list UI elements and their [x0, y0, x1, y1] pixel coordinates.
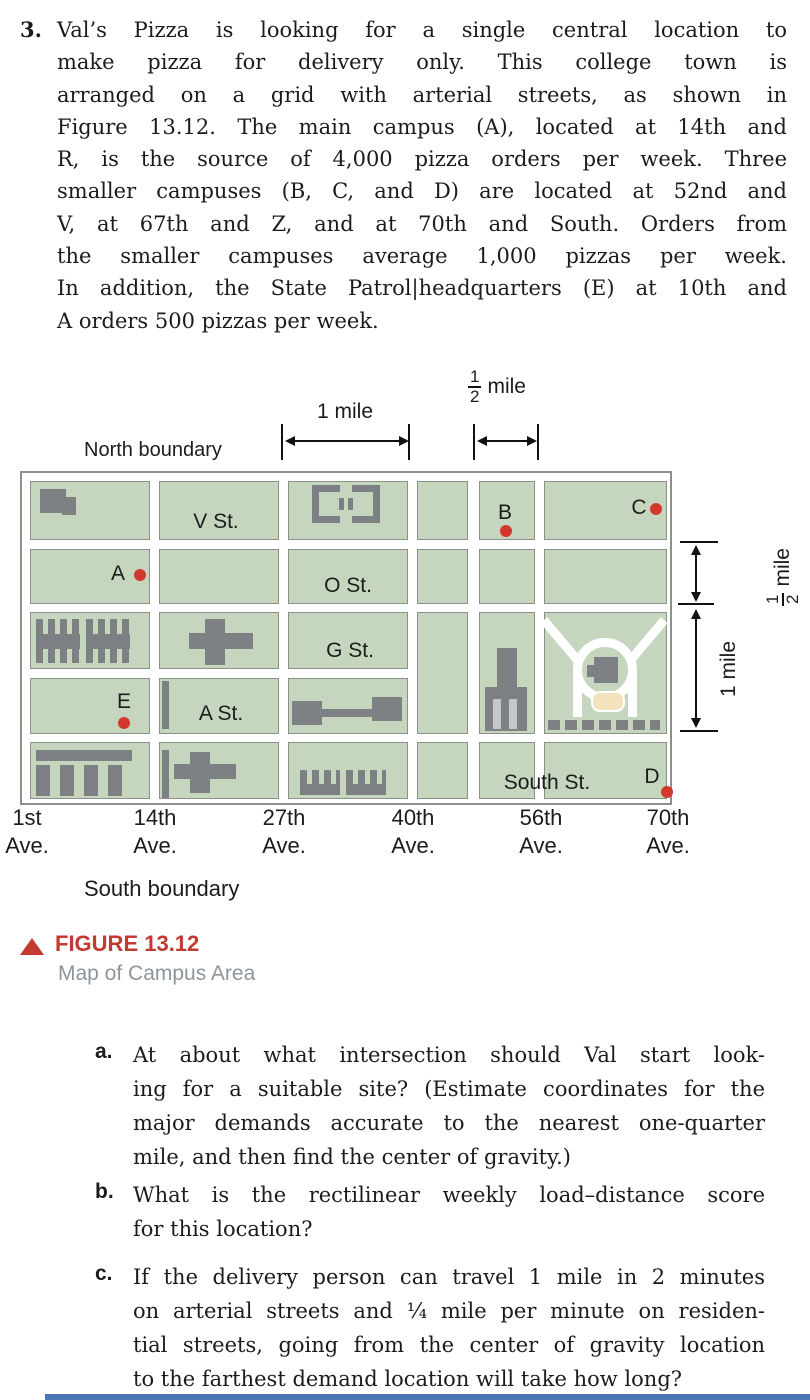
arrow-down-icon [691, 592, 701, 602]
arrow-up-icon [691, 609, 701, 619]
scale-tick [473, 424, 475, 460]
question-b-letter: b. [95, 1180, 114, 1204]
demand-point-a [134, 569, 146, 581]
city-block [417, 742, 468, 799]
stadium-wall [573, 673, 582, 717]
building-row [548, 720, 660, 730]
building [594, 657, 618, 683]
arrow-line [485, 440, 529, 442]
street-label-g: G St. [326, 639, 374, 663]
avenue-name: 14th [133, 804, 177, 832]
text-line: major demands accurate to the nearest on… [133, 1106, 765, 1140]
dimension-tick [678, 603, 714, 605]
text-line: to the farthest demand location will tak… [133, 1362, 765, 1396]
building-part [300, 770, 340, 784]
building [318, 709, 376, 717]
building [86, 619, 130, 663]
city-block [544, 549, 667, 604]
city-block [479, 549, 535, 604]
building [312, 485, 340, 523]
half-fraction: 1 2 [764, 593, 802, 606]
avenue-label-27th: 27th Ave. [262, 804, 306, 860]
building-part [300, 784, 340, 795]
point-label-d: D [644, 765, 659, 789]
avenue-label-1st: 1st Ave. [5, 804, 49, 860]
demand-point-c [650, 503, 662, 515]
text-line: If the delivery person can travel 1 mile… [133, 1260, 765, 1294]
avenue-label-40th: 40th Ave. [391, 804, 435, 860]
arrow-line [695, 552, 697, 595]
city-block [159, 549, 279, 604]
building-part [86, 619, 130, 634]
building-part [346, 784, 386, 795]
scale-half-mile-label: 1 2 mile [468, 368, 526, 406]
problem-text: Val’s Pizza is looking for a single cent… [57, 14, 787, 337]
textbook-page: 3. Val’s Pizza is looking for a single c… [0, 0, 810, 1400]
arrow-right-icon [527, 436, 537, 446]
avenue-name: 70th [646, 804, 690, 832]
building-part [86, 649, 130, 664]
avenue-suffix: Ave. [519, 832, 563, 860]
text-line: What is the rectilinear weekly load–dist… [133, 1178, 765, 1212]
street-label-a: A St. [199, 702, 243, 726]
text-line: At about what intersection should Val st… [133, 1038, 765, 1072]
stadium-wall [628, 673, 637, 717]
building [36, 750, 132, 761]
question-a-letter: a. [95, 1040, 113, 1064]
demand-point-d [661, 786, 673, 798]
arrow-left-icon [477, 436, 487, 446]
avenue-suffix: Ave. [391, 832, 435, 860]
point-label-b: B [498, 501, 512, 525]
text-line: A orders 500 pizzas per week. [57, 305, 787, 337]
building-part [36, 619, 80, 634]
north-boundary-label: North boundary [84, 439, 222, 462]
campus-map: V St. O St. G St. A St. South St. A B C … [20, 471, 672, 805]
building [300, 770, 340, 795]
scale-arrow [477, 436, 537, 446]
right-scale-one-mile-label: 1 mile [717, 641, 741, 697]
city-block [417, 481, 468, 540]
building [205, 619, 225, 665]
figure-caption-title: Map of Campus Area [58, 962, 255, 986]
avenue-suffix: Ave. [262, 832, 306, 860]
city-block [544, 481, 667, 540]
building-row [36, 765, 130, 796]
question-c-letter: c. [95, 1262, 113, 1286]
avenue-suffix: Ave. [133, 832, 177, 860]
city-block [288, 481, 408, 540]
unit-label: mile [771, 548, 795, 587]
building-window [493, 699, 501, 729]
arrow-right-icon [399, 436, 409, 446]
text-line: for this location? [133, 1212, 765, 1246]
arrow-line [695, 616, 697, 721]
half-mile-wrap: 1 2 mile [764, 548, 802, 606]
fraction-denominator: 2 [782, 593, 802, 606]
building-window [509, 699, 517, 729]
unit-label: mile [487, 375, 526, 399]
text-line: R, is the source of 4,000 pizza orders p… [57, 143, 787, 175]
fraction-denominator: 2 [468, 386, 481, 406]
dimension-arrow [691, 609, 701, 728]
building [162, 681, 169, 729]
building [348, 498, 353, 510]
scale-tick [281, 424, 283, 460]
text-line: the smaller campuses average 1,000 pizza… [57, 240, 787, 272]
text-line: ing for a suitable site? (Estimate coord… [133, 1072, 765, 1106]
text-line: V, at 67th and Z, and at 70th and South.… [57, 208, 787, 240]
text-line: tial streets, going from the center of g… [133, 1328, 765, 1362]
scale-tick [537, 424, 539, 460]
point-label-e: E [117, 690, 131, 714]
building-part [86, 634, 130, 649]
right-scale-half-mile-label: 1 2 mile [764, 548, 802, 606]
avenue-name: 1st [5, 804, 49, 832]
building [190, 752, 210, 793]
arrow-down-icon [691, 718, 701, 728]
avenue-suffix: Ave. [646, 832, 690, 860]
dimension-tick [680, 730, 718, 732]
text-line: Figure 13.12. The main campus (A), locat… [57, 111, 787, 143]
dimension-arrow [691, 545, 701, 602]
city-block [30, 678, 150, 734]
city-block [417, 549, 468, 604]
building [497, 648, 517, 690]
text-line: mile, and then find the center of gravit… [133, 1140, 765, 1174]
building-part [36, 634, 80, 649]
figure-triangle-icon [20, 938, 44, 955]
page-edge-bar [45, 1394, 810, 1400]
fraction-numerator: 1 [470, 368, 479, 386]
fraction-numerator: 1 [764, 595, 782, 604]
arrow-left-icon [285, 436, 295, 446]
street-label-south: South St. [504, 771, 590, 795]
avenue-name: 40th [391, 804, 435, 832]
text-line: on arterial streets and ¹⁄₄ mile per min… [133, 1294, 765, 1328]
building [346, 770, 386, 795]
scale-one-mile-label: 1 mile [317, 400, 373, 424]
avenue-label-14th: 14th Ave. [133, 804, 177, 860]
text-line: Val’s Pizza is looking for a single cent… [57, 14, 787, 46]
street-label-o: O St. [324, 574, 372, 598]
avenue-label-70th: 70th Ave. [646, 804, 690, 860]
question-a-text: At about what intersection should Val st… [133, 1038, 765, 1174]
dimension-tick [680, 541, 718, 543]
building [36, 619, 80, 663]
demand-point-b [500, 525, 512, 537]
city-block [417, 612, 468, 734]
building [352, 485, 380, 523]
question-c-text: If the delivery person can travel 1 mile… [133, 1260, 765, 1396]
building [62, 497, 76, 515]
figure-caption-label: FIGURE 13.12 [55, 931, 199, 957]
text-line: smaller campuses (B, C, and D) are locat… [57, 175, 787, 207]
question-b-text: What is the rectilinear weekly load–dist… [133, 1178, 765, 1246]
stadium-field [591, 691, 625, 712]
avenue-label-56th: 56th Ave. [519, 804, 563, 860]
demand-point-e [118, 717, 130, 729]
avenue-name: 56th [519, 804, 563, 832]
avenue-suffix: Ave. [5, 832, 49, 860]
building [587, 665, 595, 677]
south-boundary-label: South boundary [84, 876, 239, 902]
half-fraction: 1 2 [468, 368, 481, 406]
building [485, 687, 527, 731]
text-line: In addition, the State Patrol|headquarte… [57, 272, 787, 304]
building [162, 750, 169, 798]
building [372, 697, 402, 721]
street-label-v: V St. [193, 510, 239, 534]
scale-arrow [285, 436, 409, 446]
building [339, 498, 344, 510]
point-label-c: C [631, 496, 646, 520]
problem-number: 3. [20, 14, 42, 46]
city-block [30, 549, 150, 604]
text-line: arranged on a grid with arterial streets… [57, 79, 787, 111]
avenue-name: 27th [262, 804, 306, 832]
building-part [36, 649, 80, 664]
text-line: make pizza for delivery only. This colle… [57, 46, 787, 78]
building-part [346, 770, 386, 784]
arrow-up-icon [691, 545, 701, 555]
point-label-a: A [111, 562, 125, 586]
arrow-line [293, 440, 401, 442]
